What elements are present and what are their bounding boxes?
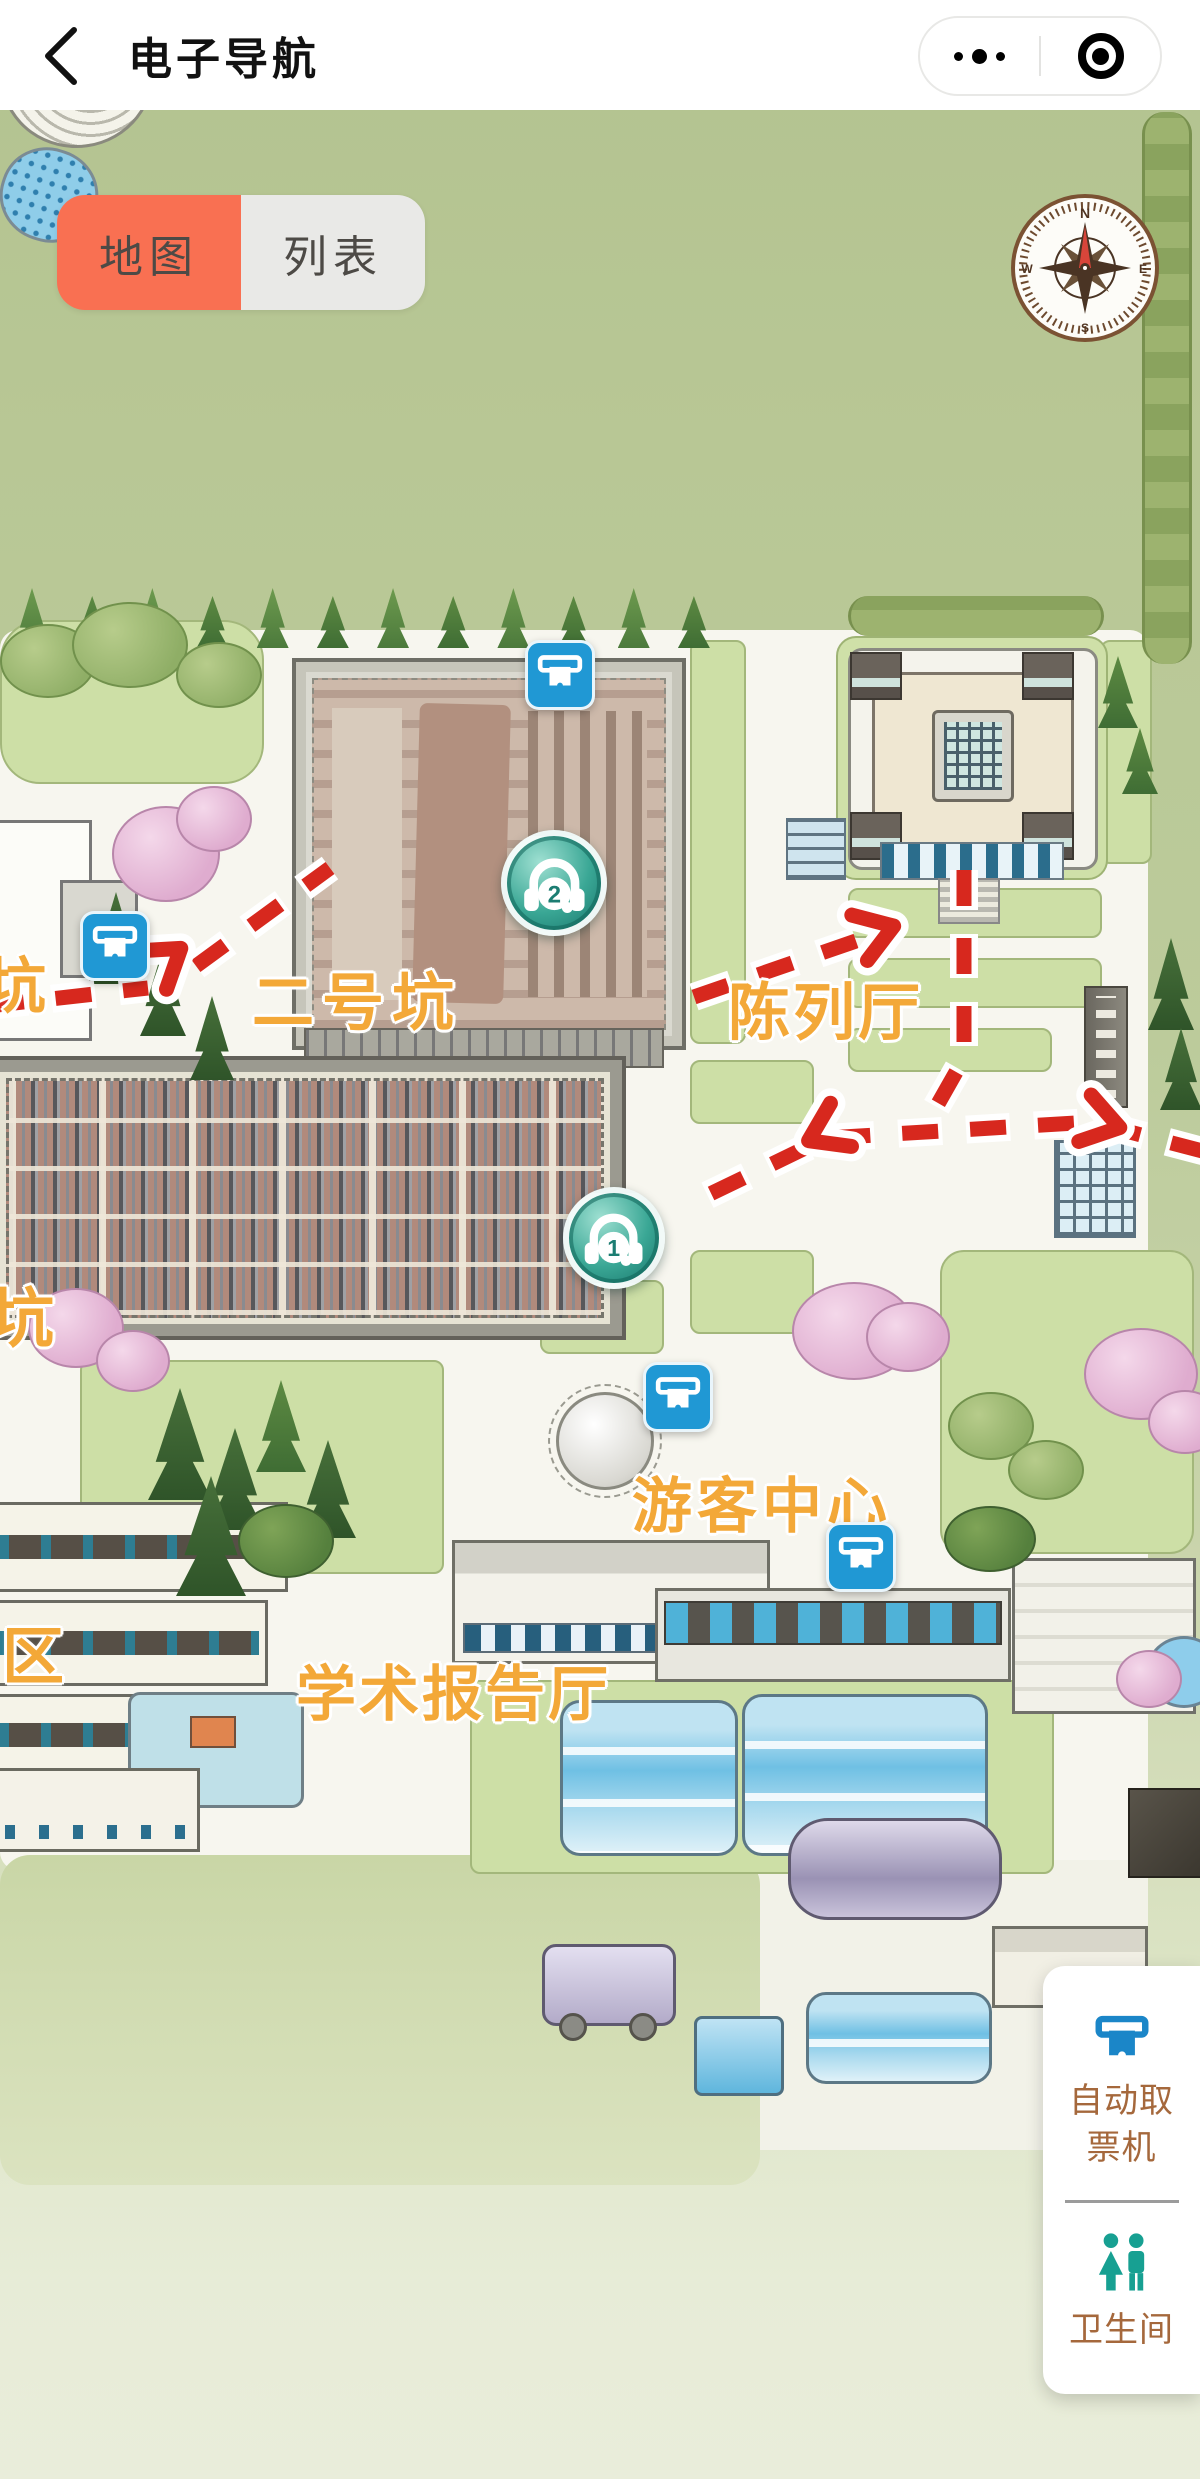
audio-guide-icon: 1: [574, 1198, 653, 1277]
lecture-hall-building: [655, 1588, 1011, 1682]
exhibition-hall-entrance: [880, 842, 1064, 880]
bush-icon: [1008, 1440, 1084, 1500]
exhibition-hall-steps: [938, 878, 1000, 924]
bush-icon: [238, 1504, 334, 1578]
blossom-tree-icon: [1116, 1650, 1182, 1708]
ticket-machine-icon: [1089, 2010, 1155, 2072]
map-label-pit1: 坑: [0, 1268, 54, 1360]
service-houses: [0, 1768, 200, 1852]
map-label-zone: 区: [2, 1606, 64, 1696]
svg-text:2: 2: [547, 881, 560, 908]
corner-pavilion: [1022, 652, 1074, 700]
green-patch: [690, 1060, 814, 1124]
skylight-grid: [932, 710, 1014, 802]
ticket-machine-icon: [833, 1529, 889, 1585]
more-dots-icon[interactable]: [920, 18, 1039, 94]
svg-text:E: E: [1139, 262, 1147, 276]
restroom-icon: [1084, 2231, 1160, 2301]
pool-hut: [190, 1716, 236, 1748]
map-label-exhibition-hall: 陈列厅: [728, 962, 923, 1052]
tab-map[interactable]: 地图: [57, 195, 241, 310]
svg-text:1: 1: [608, 1235, 621, 1261]
blossom-tree-icon: [866, 1302, 950, 1372]
blossom-tree-icon: [176, 786, 252, 852]
map-label-lecture-hall: 学术报告厅: [296, 1646, 611, 1733]
conifer-icon: [1148, 938, 1194, 1030]
water-tank: [806, 1992, 992, 2084]
purple-tank: [788, 1818, 1002, 1920]
conifer-icon: [1160, 1028, 1200, 1110]
svg-text:N: N: [1080, 205, 1090, 221]
miniprogram-capsule: [918, 16, 1162, 96]
compass-icon: N E S W: [1005, 188, 1165, 348]
electronic-navigation-page: 坑 二号坑 陈列厅 坑 游客中心 区 学术报告厅 2 1: [0, 0, 1200, 2479]
audio-marker-1[interactable]: 1: [563, 1187, 665, 1289]
legend-divider: [1065, 2200, 1179, 2203]
ticket-machine-poi[interactable]: [80, 911, 150, 981]
wheeled-tank: [542, 1944, 676, 2026]
audio-marker-2[interactable]: 2: [501, 830, 607, 936]
bush-icon: [72, 602, 188, 688]
kiosk: [786, 818, 846, 880]
ticket-machine-poi[interactable]: [643, 1362, 713, 1432]
tab-list[interactable]: 列表: [241, 195, 425, 310]
bush-icon: [176, 642, 262, 708]
facility-legend-panel: 自动取票机 卫生间: [1043, 1966, 1200, 2394]
view-toggle: 地图 列表: [57, 195, 425, 310]
ticket-machine-poi[interactable]: [826, 1522, 896, 1592]
svg-text:S: S: [1081, 321, 1089, 335]
legend-label-ticket-machine: 自动取票机: [1059, 2078, 1185, 2172]
svg-text:W: W: [1021, 262, 1033, 276]
back-icon[interactable]: [38, 24, 82, 88]
blue-kiosk: [1054, 1140, 1136, 1238]
audio-guide-icon: 2: [513, 842, 596, 925]
legend-item-ticket-machine[interactable]: 自动取票机: [1043, 1966, 1200, 2172]
tall-kiosk: [1084, 986, 1128, 1108]
map-label-pit2: 二号坑: [252, 952, 462, 1042]
ticket-machine-icon: [532, 647, 588, 703]
blue-shed: [694, 2016, 784, 2096]
map-label-pit3: 坑: [0, 938, 46, 1025]
bush-icon: [944, 1506, 1036, 1572]
map-canvas[interactable]: 坑 二号坑 陈列厅 坑 游客中心 区 学术报告厅 2 1: [0, 0, 1200, 2479]
page-title: 电子导航: [128, 23, 320, 87]
blossom-tree-icon: [96, 1330, 170, 1392]
ticket-machine-icon: [650, 1369, 706, 1425]
ticket-machine-poi[interactable]: [525, 640, 595, 710]
nav-bar: 电子导航: [0, 0, 1200, 110]
close-target-icon[interactable]: [1041, 18, 1160, 94]
ticket-machine-icon: [87, 918, 143, 974]
legend-label-restroom: 卫生间: [1059, 2307, 1185, 2354]
corner-pavilion: [850, 652, 902, 700]
dark-shed: [1128, 1788, 1200, 1878]
legend-item-restroom[interactable]: 卫生间: [1043, 2231, 1200, 2354]
hedge-row: [848, 596, 1104, 636]
